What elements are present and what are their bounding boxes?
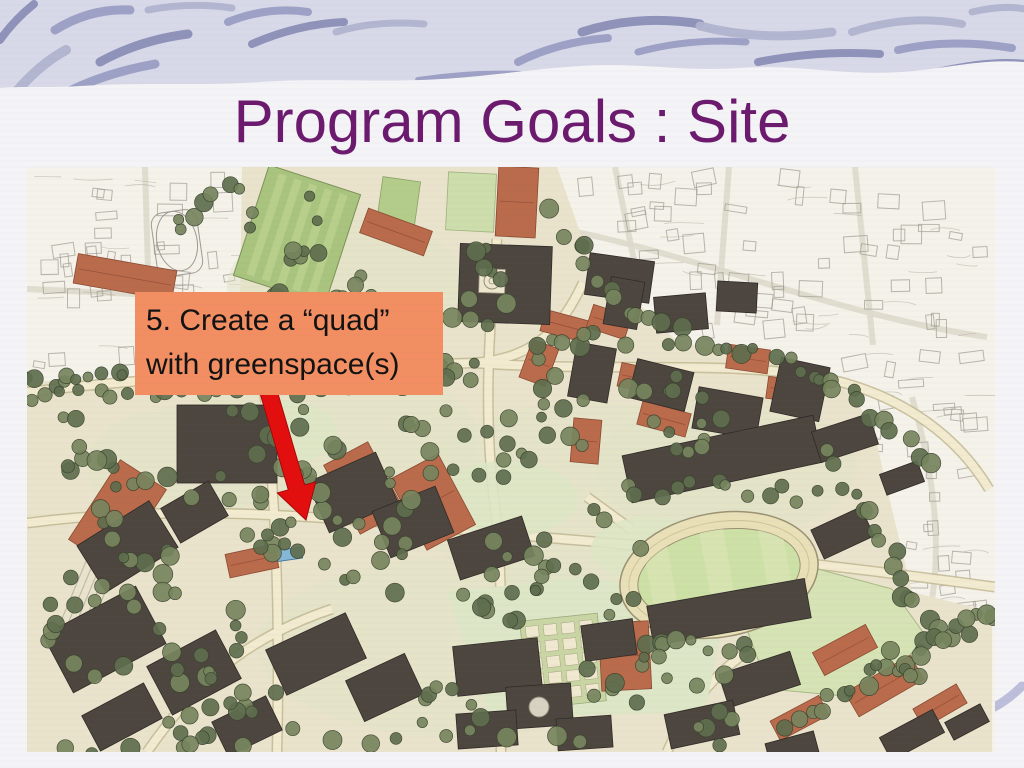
- slide: Program Goals : Site 5. Create a “quad” …: [0, 0, 1024, 768]
- slide-title: Program Goals : Site: [0, 92, 1024, 152]
- callout-text-line2: with greenspace(s): [146, 343, 435, 387]
- decorative-header-band: [0, 0, 1024, 92]
- callout-box: 5. Create a “quad” with greenspace(s): [135, 292, 443, 395]
- campus-map-illustration: [27, 167, 995, 752]
- campus-map-svg: [27, 167, 995, 752]
- domed-building: [529, 697, 549, 717]
- lawn-north: [446, 172, 497, 232]
- callout-text-line1: 5. Create a “quad”: [146, 299, 435, 343]
